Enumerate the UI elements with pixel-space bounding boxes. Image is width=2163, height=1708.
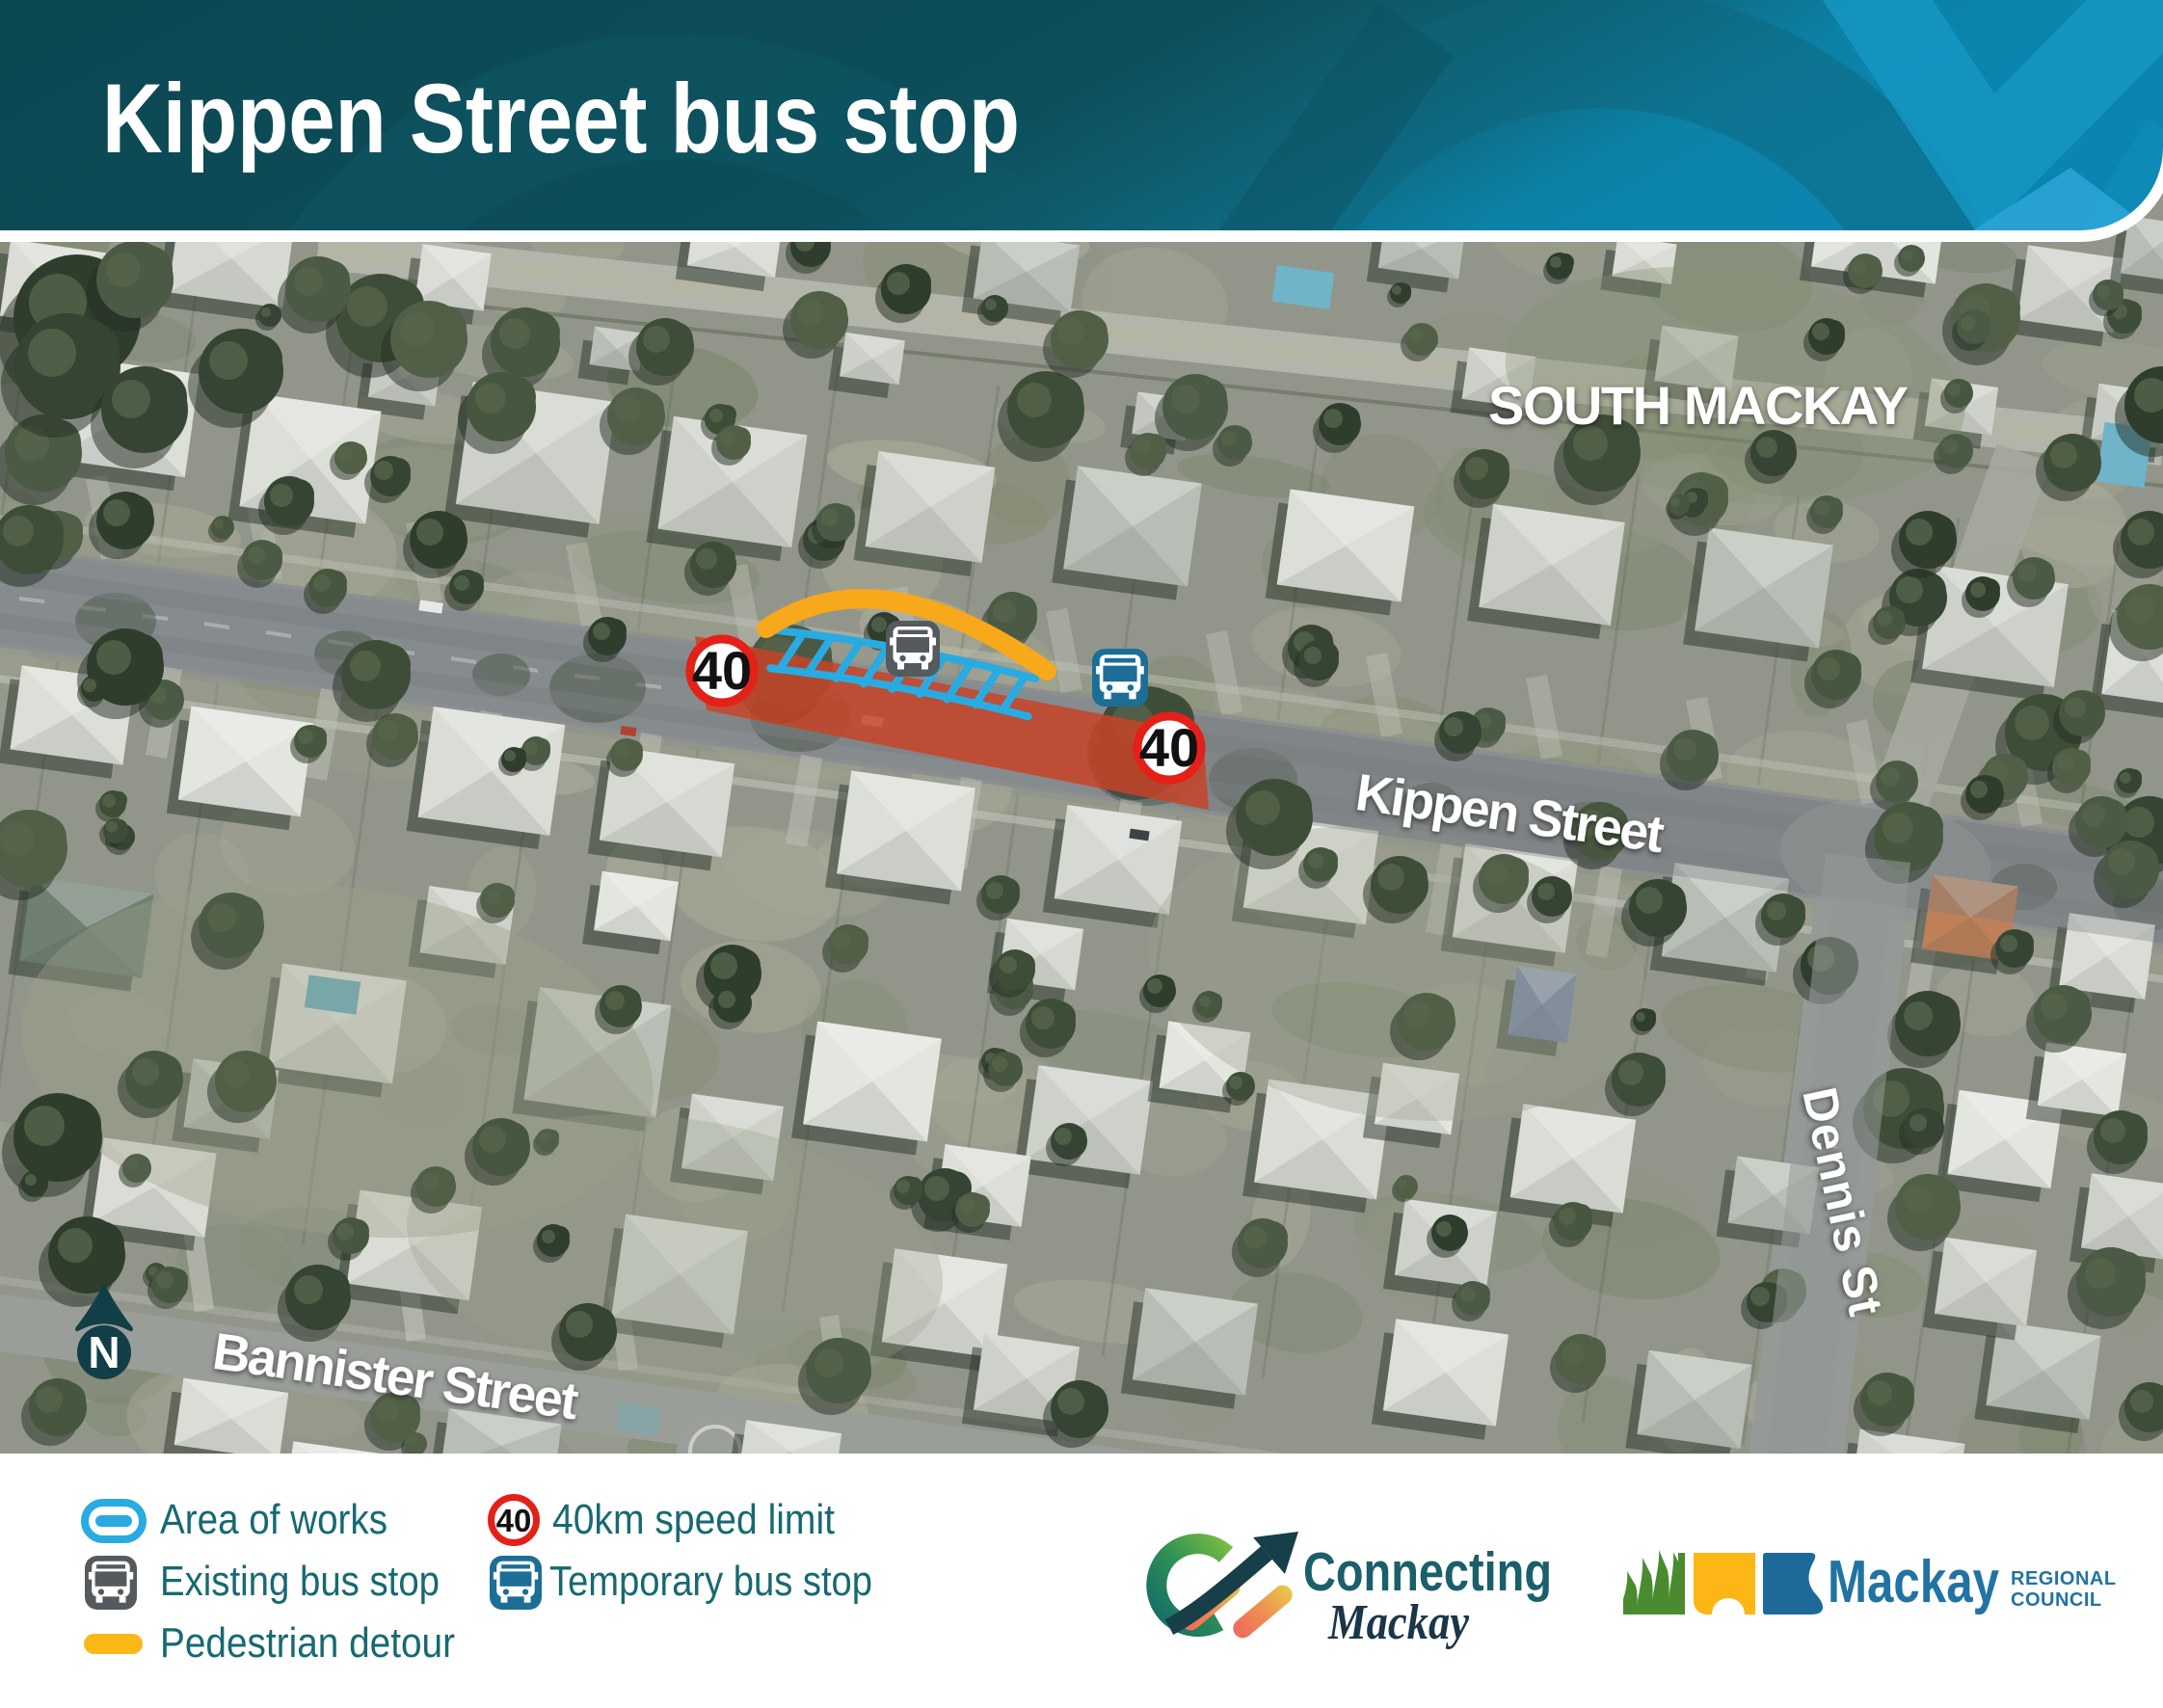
svg-text:Pedestrian detour: Pedestrian detour — [160, 1619, 455, 1667]
svg-text:40: 40 — [692, 640, 752, 701]
svg-text:Mackay: Mackay — [1327, 1595, 1470, 1650]
svg-text:N: N — [88, 1327, 120, 1377]
svg-text:Connecting: Connecting — [1303, 1541, 1552, 1603]
svg-text:SOUTH MACKAY: SOUTH MACKAY — [1488, 375, 1909, 436]
svg-text:40: 40 — [1139, 717, 1199, 778]
svg-text:Kippen Street bus stop: Kippen Street bus stop — [102, 64, 1020, 173]
svg-text:40km speed limit: 40km speed limit — [552, 1496, 835, 1543]
svg-text:Temporary bus stop: Temporary bus stop — [549, 1558, 872, 1605]
svg-text:Mackay: Mackay — [1828, 1549, 1999, 1615]
svg-text:REGIONAL: REGIONAL — [2011, 1568, 2117, 1589]
svg-text:COUNCIL: COUNCIL — [2011, 1589, 2102, 1611]
svg-text:Existing bus stop: Existing bus stop — [160, 1558, 440, 1605]
svg-text:40: 40 — [496, 1503, 532, 1538]
svg-text:Area of works: Area of works — [160, 1496, 387, 1543]
